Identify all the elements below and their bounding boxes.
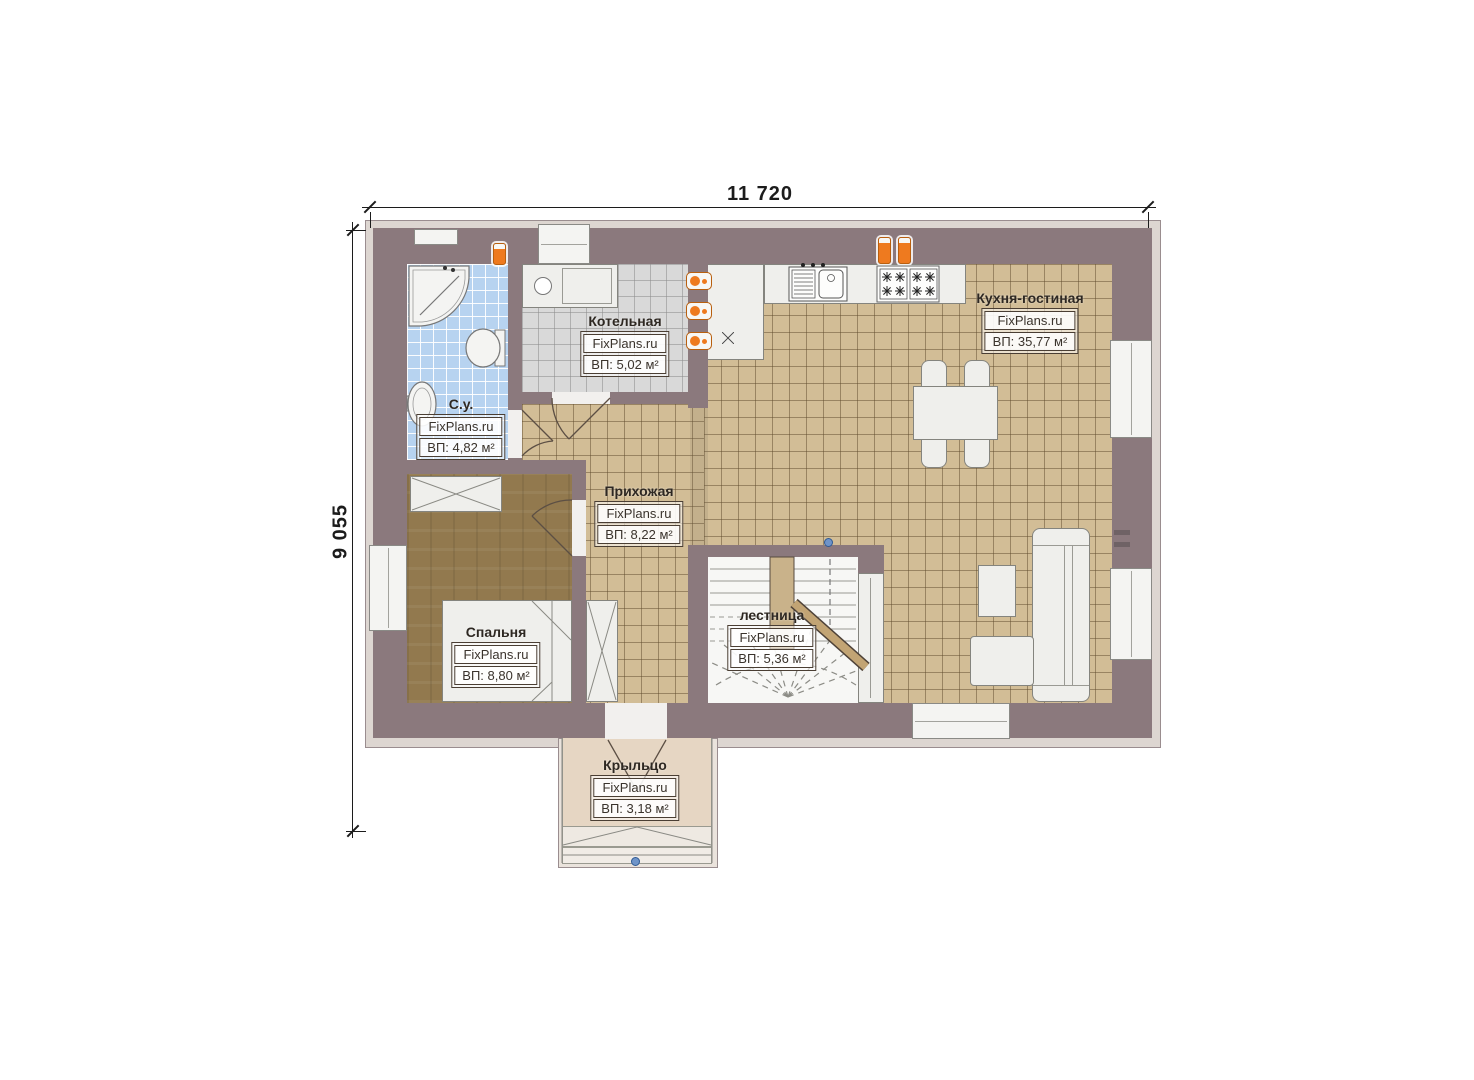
- door-swings-overlay: [0, 0, 1474, 1080]
- wardrobe-x: [412, 478, 500, 510]
- room-name: Спальня: [451, 624, 540, 640]
- room-area: ВП: 5,02 м²: [583, 355, 666, 374]
- room-area: ВП: 4,82 м²: [419, 438, 502, 457]
- room-name: Котельная: [580, 313, 669, 329]
- entry-marker: [824, 538, 833, 547]
- floor-plan-canvas: С.у. FixPlans.ru ВП: 4,82 м² Котельная F…: [0, 0, 1474, 1080]
- dimension-witness: [1148, 212, 1149, 228]
- room-name: лестница: [727, 607, 816, 623]
- bedroom-door-swing: [532, 500, 572, 556]
- watermark: FixPlans.ru: [583, 334, 666, 353]
- watermark: FixPlans.ru: [454, 645, 537, 664]
- room-area: ВП: 8,22 м²: [597, 525, 680, 544]
- room-name: Кухня-гостиная: [976, 290, 1083, 306]
- room-label-kitchen-living: Кухня-гостиная FixPlans.ru ВП: 35,77 м²: [976, 290, 1083, 354]
- dimension-witness: [370, 212, 371, 228]
- room-label-bedroom: Спальня FixPlans.ru ВП: 8,80 м²: [451, 624, 540, 688]
- boiler-door-swing: [552, 398, 610, 439]
- porch-step-chevron: [563, 827, 711, 855]
- watermark: FixPlans.ru: [419, 417, 502, 436]
- room-name: С.у.: [416, 396, 505, 412]
- watermark: FixPlans.ru: [597, 504, 680, 523]
- room-label-porch: Крыльцо FixPlans.ru ВП: 3,18 м²: [590, 757, 679, 821]
- room-label-hallway: Прихожая FixPlans.ru ВП: 8,22 м²: [594, 483, 683, 547]
- bathroom-door-swing: [522, 410, 553, 456]
- dimension-height-label: 9 055: [330, 487, 353, 577]
- room-area: ВП: 35,77 м²: [985, 332, 1076, 351]
- wardrobe-x: [588, 602, 616, 700]
- dimension-width-label: 11 720: [700, 183, 820, 206]
- room-label-boiler: Котельная FixPlans.ru ВП: 5,02 м²: [580, 313, 669, 377]
- watermark: FixPlans.ru: [985, 311, 1076, 330]
- room-area: ВП: 3,18 м²: [593, 799, 676, 818]
- room-area: ВП: 5,36 м²: [730, 649, 813, 668]
- watermark: FixPlans.ru: [730, 628, 813, 647]
- room-label-stairs: лестница FixPlans.ru ВП: 5,36 м²: [727, 607, 816, 671]
- room-name: Крыльцо: [590, 757, 679, 773]
- room-area: ВП: 8,80 м²: [454, 666, 537, 685]
- dimension-line-top: [362, 207, 1156, 208]
- room-label-bathroom: С.у. FixPlans.ru ВП: 4,82 м²: [416, 396, 505, 460]
- entry-marker: [631, 857, 640, 866]
- room-name: Прихожая: [594, 483, 683, 499]
- watermark: FixPlans.ru: [593, 778, 676, 797]
